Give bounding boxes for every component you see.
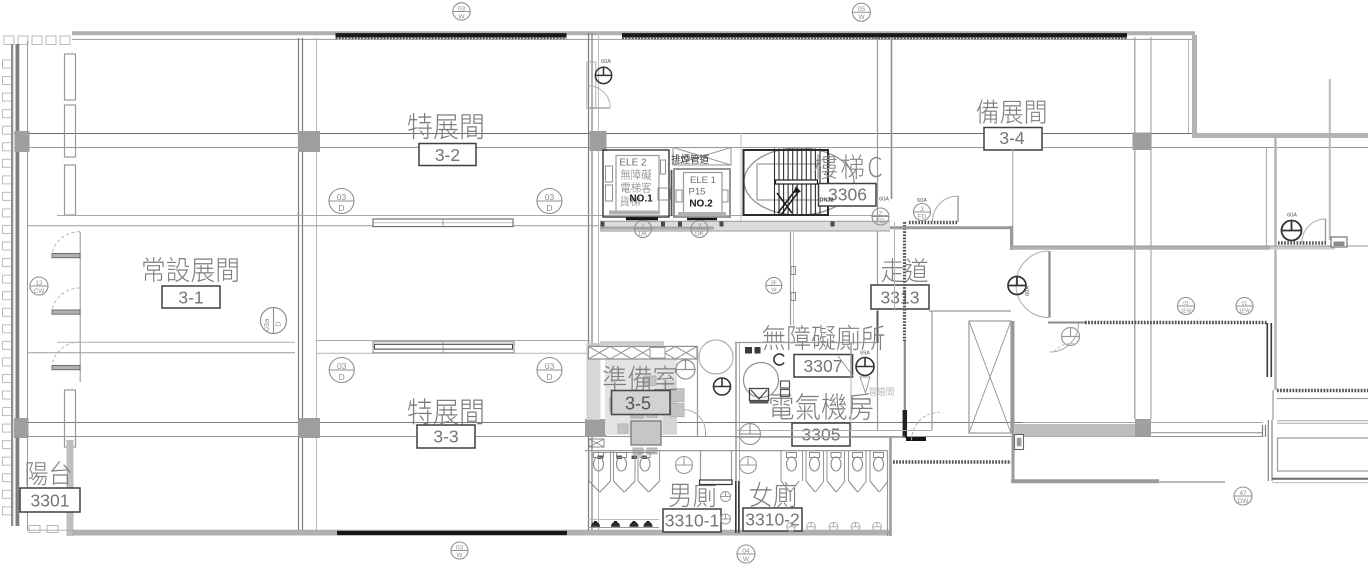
svg-text:DK: DK — [638, 231, 648, 238]
svg-text:3305: 3305 — [802, 425, 841, 445]
svg-text:D: D — [339, 372, 345, 382]
svg-text:3313: 3313 — [881, 288, 920, 308]
svg-text:CW: CW — [34, 288, 46, 295]
svg-text:3-2: 3-2 — [435, 145, 460, 165]
svg-text:DK: DK — [695, 231, 705, 238]
svg-text:P15: P15 — [689, 187, 706, 198]
svg-text:DW: DW — [1238, 498, 1250, 505]
svg-text:60A: 60A — [1025, 286, 1031, 296]
svg-text:W: W — [458, 13, 465, 20]
svg-text:01: 01 — [1183, 301, 1189, 307]
svg-text:FD: FD — [876, 218, 885, 225]
svg-text:1: 1 — [641, 223, 645, 230]
svg-text:W: W — [743, 556, 750, 563]
svg-text:60A: 60A — [601, 59, 611, 65]
svg-text:69A: 69A — [860, 351, 870, 357]
svg-text:1EW: 1EW — [1239, 309, 1250, 315]
svg-text:3-4: 3-4 — [999, 128, 1025, 148]
svg-text:47: 47 — [1239, 490, 1247, 497]
svg-text:ELE 2: ELE 2 — [619, 158, 647, 169]
svg-text:3307: 3307 — [804, 356, 843, 376]
svg-text:FD: FD — [918, 214, 927, 221]
svg-text:NO.2: NO.2 — [689, 199, 713, 210]
svg-text:03: 03 — [337, 361, 347, 371]
svg-text:03: 03 — [337, 192, 347, 202]
svg-text:ELE 1: ELE 1 — [690, 175, 716, 186]
svg-text:NO.1: NO.1 — [629, 194, 653, 205]
svg-text:03: 03 — [545, 192, 555, 202]
svg-text:3F: 3F — [771, 280, 778, 286]
svg-text:1EW: 1EW — [1181, 309, 1192, 315]
svg-text:60A: 60A — [879, 197, 889, 203]
svg-text:3301: 3301 — [31, 491, 70, 511]
svg-text:W: W — [858, 14, 865, 21]
svg-text:12: 12 — [35, 280, 43, 287]
svg-text:W: W — [771, 288, 777, 294]
svg-text:01: 01 — [1242, 301, 1248, 307]
svg-text:W: W — [456, 552, 463, 559]
svg-text:D: D — [338, 203, 344, 213]
svg-text:03: 03 — [545, 361, 555, 371]
svg-text:60A: 60A — [1287, 213, 1297, 219]
svg-text:D: D — [546, 203, 552, 213]
svg-text:3310-1: 3310-1 — [665, 511, 720, 531]
svg-text:D: D — [546, 372, 552, 382]
svg-text:05: 05 — [858, 6, 866, 13]
svg-text:3-3: 3-3 — [433, 427, 458, 447]
svg-text:03: 03 — [456, 544, 464, 551]
svg-text:03a: 03a — [262, 318, 271, 331]
svg-text:DN32: DN32 — [820, 198, 834, 204]
svg-text:2: 2 — [879, 210, 883, 217]
svg-text:03: 03 — [458, 5, 466, 12]
svg-text:D: D — [274, 321, 283, 327]
svg-text:3306: 3306 — [828, 185, 867, 205]
svg-text:3-5: 3-5 — [625, 394, 651, 414]
svg-text:2: 2 — [698, 223, 702, 230]
svg-text:04: 04 — [742, 548, 750, 555]
svg-text:3: 3 — [920, 206, 924, 213]
svg-text:3-1: 3-1 — [178, 288, 203, 308]
svg-text:60A: 60A — [917, 198, 927, 204]
